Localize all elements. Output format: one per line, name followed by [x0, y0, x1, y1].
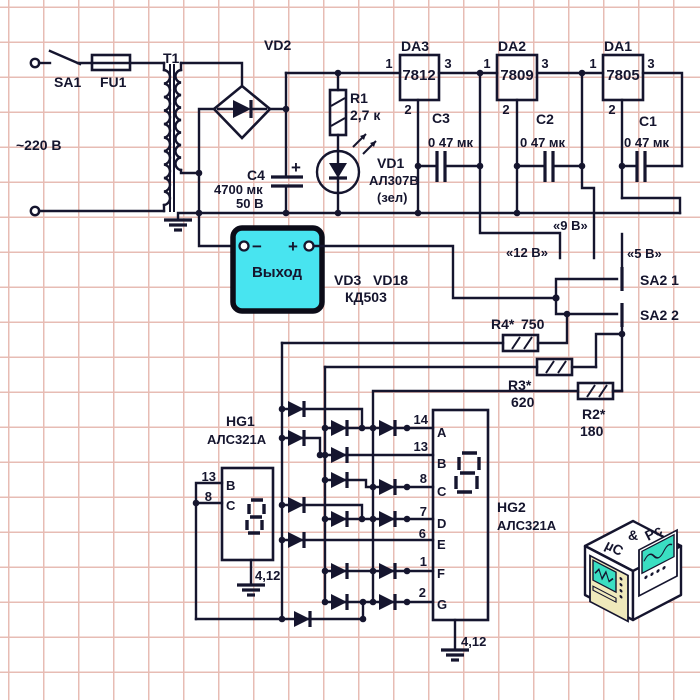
label-sa1: SA1: [54, 74, 81, 90]
label-c1: C1: [639, 113, 657, 129]
ground-symbol-hg1: [237, 585, 265, 595]
circuit-schematic: SA1 FU1 Т1 ~220 В VD2 C4 4700 мк 50 В + …: [0, 0, 700, 700]
label-sa2-2: SA2 2: [640, 307, 679, 323]
logo-text-amp: &: [628, 527, 638, 543]
label-c3-value: 0 47 мк: [428, 135, 474, 150]
da1-pin3: 3: [647, 56, 654, 71]
da2-pin2: 2: [502, 102, 509, 117]
label-c2-value: 0 47 мк: [520, 135, 566, 150]
hg2-pin-8: 8: [420, 471, 427, 486]
label-c4-voltage: 50 В: [236, 196, 263, 211]
hg2-seg-c: C: [437, 484, 447, 499]
label-output: Выход: [252, 264, 303, 281]
hg1-seg-c: C: [226, 498, 236, 513]
label-hg1-type: АЛС321А: [207, 432, 267, 447]
hg2-pin-6: 6: [419, 526, 426, 541]
ground-symbol-hg2: [441, 650, 469, 660]
hg2-digit-glyph: [456, 453, 479, 492]
led-vd1-symbol: [317, 134, 376, 213]
label-hg2-type: АЛС321А: [497, 518, 557, 533]
label-hg1: HG1: [226, 413, 255, 429]
label-tap-12v: «12 В»: [506, 245, 548, 260]
label-da1-chip: 7805: [606, 67, 639, 84]
label-kd503: КД503: [345, 289, 387, 305]
transformer-t1-symbol: [164, 63, 199, 212]
da3-pin3: 3: [444, 56, 451, 71]
hg2-seg-f: F: [437, 566, 445, 581]
resistor-r1-symbol: [330, 73, 346, 151]
hg2-seg-a: A: [437, 425, 447, 440]
label-fu1: FU1: [100, 74, 127, 90]
label-da3: DA3: [401, 38, 429, 54]
hg1-pin-13: 13: [202, 469, 216, 484]
output-minus-terminal: [240, 242, 249, 251]
label-vd18: VD18: [373, 272, 408, 288]
label-vd2: VD2: [264, 37, 291, 53]
label-r4-value: 750: [521, 316, 545, 332]
hg2-pin-7: 7: [420, 504, 427, 519]
label-r3: R3*: [508, 377, 532, 393]
da1-pin2: 2: [608, 102, 615, 117]
label-tap-5v: «5 В»: [627, 246, 662, 261]
da3-pin1: 1: [385, 56, 392, 71]
da2-pin3: 3: [541, 56, 548, 71]
switch-sa1-lever: [50, 51, 80, 64]
label-r1-value: 2,7 к: [350, 107, 381, 123]
ground-symbol-left: [164, 220, 192, 230]
hg2-pin-14: 14: [414, 412, 429, 427]
label-c2: C2: [536, 111, 554, 127]
hg2-seg-d: D: [437, 516, 446, 531]
label-r4: R4*: [491, 316, 515, 332]
label-mains: ~220 В: [16, 137, 62, 153]
hg2-seg-b: B: [437, 456, 446, 471]
hg1-digit-glyph: [247, 500, 264, 533]
label-hg2: HG2: [497, 499, 526, 515]
label-r2: R2*: [582, 406, 606, 422]
label-vd1: VD1: [377, 155, 404, 171]
label-sa2-1: SA2 1: [640, 272, 679, 288]
hg1-seg-b: B: [226, 478, 235, 493]
hg2-seg-g: G: [437, 597, 447, 612]
voltage-tap-wires: [480, 73, 622, 267]
label-da3-chip: 7812: [402, 67, 435, 84]
label-r1: R1: [350, 90, 368, 106]
label-output-plus: +: [288, 237, 298, 256]
da2-pin1: 1: [483, 56, 490, 71]
hg2-seg-e: E: [437, 537, 446, 552]
schematic-page: SA1 FU1 Т1 ~220 В VD2 C4 4700 мк 50 В + …: [0, 0, 700, 700]
hg2-pin-2: 2: [419, 585, 426, 600]
display-hg2: [433, 410, 488, 660]
hg2-pin-13: 13: [414, 439, 428, 454]
label-vd1-type: АЛ307В: [369, 173, 419, 188]
hg2-pin-1: 1: [420, 554, 427, 569]
label-c1-value: 0 47 мк: [624, 135, 670, 150]
da1-pin1: 1: [589, 56, 596, 71]
bridge-rectifier-vd2: [199, 86, 286, 246]
output-plus-terminal: [305, 242, 314, 251]
hg1-gnd-pins: 4,12: [255, 568, 280, 583]
label-output-minus: −: [252, 237, 262, 256]
label-tap-9v: «9 В»: [553, 218, 588, 233]
da3-pin2: 2: [404, 102, 411, 117]
label-c4-value: 4700 мк: [214, 182, 263, 197]
setting-resistors: [282, 314, 622, 399]
hg1-pin-8: 8: [205, 489, 212, 504]
output-capacitors: [418, 151, 682, 182]
label-r3-value: 620: [511, 394, 535, 410]
label-r2-value: 180: [580, 423, 604, 439]
label-c4: C4: [247, 167, 265, 183]
label-t1: Т1: [163, 50, 180, 66]
label-da1: DA1: [604, 38, 632, 54]
label-vd1-color: (зел): [377, 190, 407, 205]
label-c4-plus: +: [291, 158, 301, 177]
label-da2-chip: 7809: [500, 67, 533, 84]
label-da2: DA2: [498, 38, 526, 54]
label-vd3: VD3: [334, 272, 361, 288]
hg2-gnd-pins: 4,12: [461, 634, 486, 649]
label-c3: C3: [432, 110, 450, 126]
